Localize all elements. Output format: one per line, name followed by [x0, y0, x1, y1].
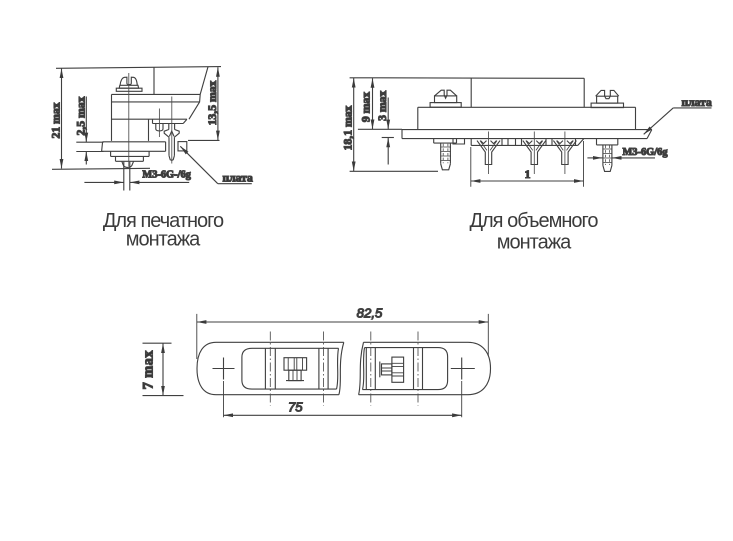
- svg-text:7 max: 7 max: [141, 350, 157, 390]
- svg-text:18,1 max: 18,1 max: [342, 105, 355, 150]
- svg-text:плата: плата: [682, 96, 713, 109]
- svg-text:М3-6G-/6g: М3-6G-/6g: [142, 169, 191, 180]
- svg-text:2,5 max: 2,5 max: [74, 96, 87, 135]
- svg-text:М3-6G/6g: М3-6G/6g: [623, 147, 669, 158]
- svg-text:монтажа: монтажа: [497, 232, 572, 254]
- svg-text:13,5 max: 13,5 max: [206, 80, 219, 125]
- svg-text:9 max: 9 max: [360, 92, 373, 122]
- svg-text:Для объемного: Для объемного: [469, 210, 598, 232]
- svg-text:21 max: 21 max: [50, 102, 63, 138]
- svg-text:плата: плата: [223, 172, 254, 185]
- svg-text:3 max: 3 max: [376, 91, 389, 121]
- svg-text:75: 75: [288, 399, 303, 414]
- svg-text:1: 1: [525, 168, 531, 181]
- svg-text:монтажа: монтажа: [126, 229, 201, 251]
- svg-text:82,5: 82,5: [357, 306, 383, 321]
